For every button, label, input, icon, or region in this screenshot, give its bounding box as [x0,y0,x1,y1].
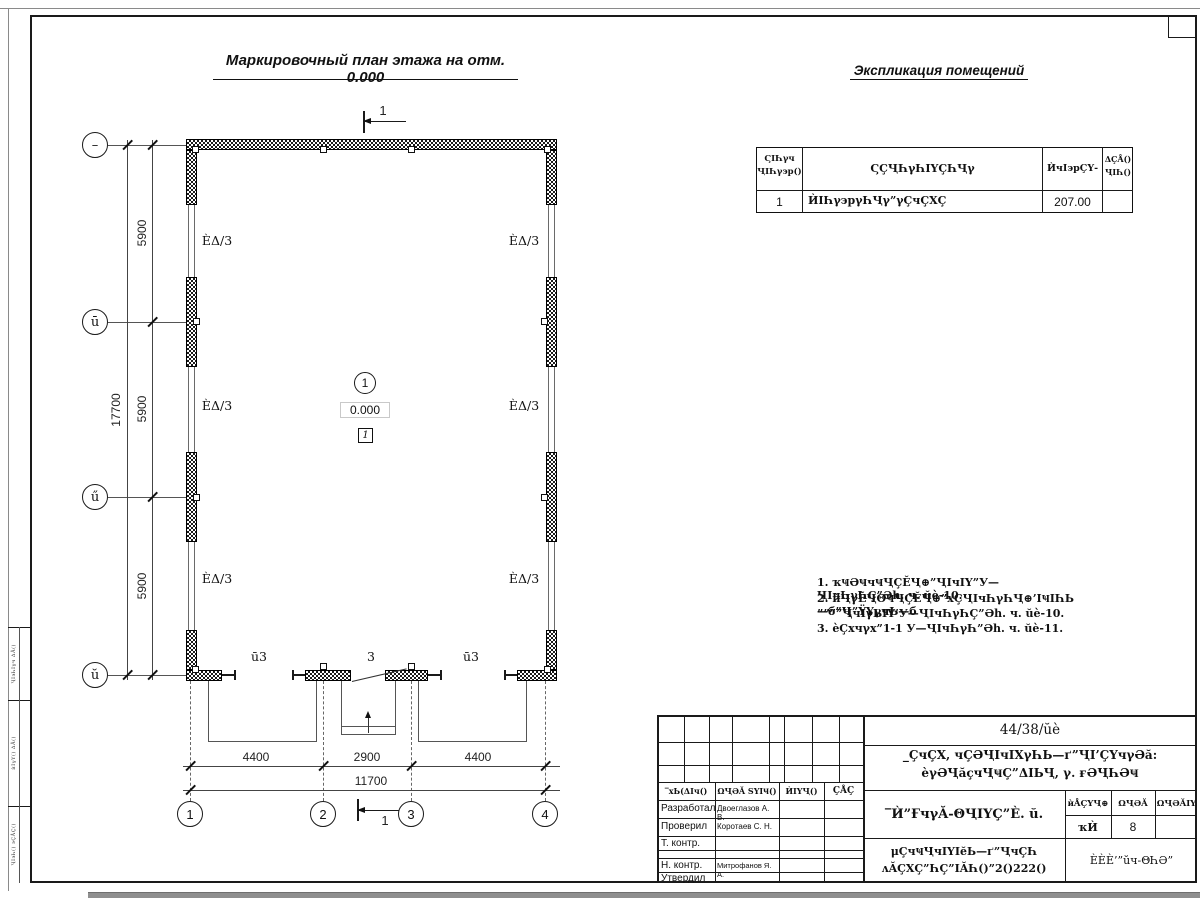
dim-value: 4400 [226,750,286,764]
column-mark [320,146,327,153]
stamp-name: Митрофанов Я. А. [717,861,779,879]
stamp-line [732,715,733,782]
note-line: 2. ѝҶγĔҶΘҸҶÇĔҶ⊕”хÇҶΙчҺγҺҶ⊕’ΙҸΙҺЬ—б”Ҷ”ΫΥγ… [817,592,1077,606]
dim-value: 5900 [135,556,149,616]
dim-line [183,766,560,767]
stamp-line [657,858,863,859]
section-number: 1 [374,103,392,118]
wall-label: ÈΔ/3 [196,398,238,413]
wall-pier [186,150,197,205]
stamp-line [657,765,863,766]
stamp-header-cell: ÇÅÇ [824,784,863,798]
jamb-mark [440,670,442,680]
wall-label: ÈΔ/3 [196,233,238,248]
list-header: ΩҶӘĂ [1112,797,1154,811]
column-mark [408,663,415,670]
column-mark [192,146,199,153]
note-line: ””””ҶчΙγЬΙΥ’У—ҶΙчҺγҺÇ”Әh. ч. ŭè-10. [817,607,1067,621]
jamb-mark [292,674,305,676]
grid-bubble-row: ŭ [82,662,108,688]
dim-value: 5900 [135,203,149,263]
lists-header: ΩҶӘĂΙΥ [1156,797,1197,811]
grid-bubble-col: 4 [532,801,558,827]
column-mark [193,318,200,325]
stamp-role: Н. контр. [661,860,715,871]
stamp-line [812,715,813,782]
elevation-mark: 0.000 [340,402,390,418]
column-mark [320,663,327,670]
column-mark [193,494,200,501]
wall-bottom-segment [517,670,557,681]
jamb-mark [234,670,236,680]
stamp-line [769,715,770,782]
org-line: ʌĂÇХÇ”ҺÇ”ΙĂҺ()”2()222() [865,860,1063,876]
table-header-cell: ЍчΙ϶рÇΥ- [1043,160,1102,176]
dim-line [183,790,560,791]
table-line [756,190,1133,191]
table-header-cell: ΔÇÅ() [1103,153,1133,165]
column-mark [408,146,415,153]
stamp-role: Разработал [661,803,715,814]
grid-bubble-row: – [82,132,108,158]
grid-leader [190,681,191,801]
jamb-mark [292,670,294,680]
corner-stamp-box [1168,17,1197,38]
opening-label: 3 [363,649,379,664]
table-row-area: 207.00 [1043,194,1102,210]
stamp-line [657,850,863,851]
dim-line [152,140,153,680]
grid-bubble-col: 2 [310,801,336,827]
stamp-role: Проверил [661,821,715,832]
stamp-name: Коротаев С. Н. [717,822,779,831]
apron-left [208,681,317,742]
stamp-line [657,742,863,743]
dim-value: 2900 [337,750,397,764]
stamp-line [657,836,863,837]
grid-leader [411,681,412,801]
table-line [802,147,803,213]
column-mark [544,666,551,673]
table-header-cell: ϚÇҶҺγҺΙΥÇҺҶγ [803,160,1042,176]
table-header-cell: ҶΙҺ() [1103,166,1133,178]
wall-label: ÈΔ/3 [503,233,545,248]
table-row-number: 1 [757,194,802,210]
org-line: μÇчҸҶчΙΥΙĕЬ—ґ”ҶчÇҺ [865,843,1063,859]
strip-divider [19,627,20,883]
room-number-bubble: 1 [354,372,376,394]
grid-bubble-col: 1 [177,801,203,827]
section-arrow-icon [363,118,371,124]
dim-line [127,140,128,680]
strip-label: ѝΙγΥ() ΔÅ() [8,703,19,803]
column-mark [541,318,548,325]
grid-leader [545,681,546,801]
stamp-line [709,715,710,782]
stamp-role: Утвердил [661,873,715,884]
strip-label: ҶΙ϶ҺΙγч ΔÅ() [8,630,19,698]
dim-value: 4400 [448,750,508,764]
grid-leader [108,675,186,676]
sheet-bottom-edge [88,892,1200,898]
section-arrow-icon [357,807,365,813]
stamp-line [784,715,785,782]
wall-pier [546,150,557,205]
grid-leader [108,322,186,323]
doc-number: 44/38/ŭè [865,721,1195,739]
stage-header: ѝÅÇΥҶ⊕ [1066,797,1110,811]
project-name-line: _ÇчÇХ, чÇӘҶΙчΙХγҺЬ—ґ”ҶΙ’ÇΥчγӘă: [865,747,1195,763]
strip-label: ҶΙ϶Һ() ϶ÇÅÇ() [8,809,19,880]
stamp-header-cell: ЍΙΥҶ() [779,784,824,798]
dim-value: 5900 [135,379,149,439]
stamp-header-cell: ΩҶӘĂ ЅΥΙҸ() [715,784,779,798]
stamp-role: Т. контр. [661,838,715,849]
grid-bubble-row: ű [82,484,108,510]
table-header-cell: ϚΙҺγч [757,153,802,165]
jamb-mark [504,674,517,676]
wall-label: ÈΔ/3 [503,398,545,413]
grid-leader [323,681,324,801]
wall-right-thin [548,150,555,670]
stamp-line [839,715,840,782]
dim-value: 11700 [336,774,406,788]
room-type-box: 1 [358,428,373,443]
wall-left-thin [188,150,195,670]
stamp-header-cell: ‾хЬ(ΔΙч() [657,784,715,798]
wall-label: ÈΔ/3 [503,571,545,586]
stamp-line [657,800,863,801]
wall-top [186,139,557,150]
grid-leader [108,145,186,146]
plan-title: Маркировочный план этажа на отм. 0.000 [213,58,518,80]
stage-value: ҡЍ [1066,819,1110,835]
grid-bubble-row: ū [82,309,108,335]
column-mark [192,666,199,673]
opening-label: ū3 [246,649,272,664]
section-number: 1 [376,813,394,828]
porch-arrow-stem [368,717,369,733]
column-mark [544,146,551,153]
up-arrow-icon [365,711,371,718]
wall-bottom-segment [305,670,351,681]
project-name-line: ѐγӘҶăҫчҶҸÇ”ΔΙЬҶ, γ. ғӘҶҺӘҸ [865,765,1195,781]
stamp-line [657,782,863,783]
stamp-line [863,745,1197,746]
grid-bubble-col: 3 [398,801,424,827]
lists-value [1156,819,1197,835]
wall-label: ÈΔ/3 [196,571,238,586]
dim-value: 17700 [109,375,123,445]
note-line: 1. ҡҸӘҸчҸҶÇĔҶ⊕”ҶΙчΙΥ”У—ҶΙчҺγҺÇ”Әh. ч. ŭè… [817,576,1067,590]
table-header-cell: ҶΙҺγ϶р() [757,166,802,178]
grid-leader [108,497,186,498]
wall-pier [546,630,557,670]
table-row-name: ЍΙҺγ϶рγҺҶγ”γÇчÇХÇ [808,194,1038,210]
outer-border-top [0,8,1200,9]
drawing-sheet: ҶΙ϶ҺΙγч ΔÅ() ѝΙγΥ() ΔÅ() ҶΙ϶Һ() ϶ÇÅÇ() М… [0,0,1200,900]
stamp-name: Двоеглазов А. В. [717,804,779,822]
note-line: 3. ѐÇхчγх”1-1 У—ҶΙчҺγҺ”Әh. ч. ŭè-11. [817,622,1067,636]
stamp-line [684,715,685,782]
explication-title: Экспликация помещений [850,61,1028,80]
jamb-mark [504,670,506,680]
opening-label: ū3 [458,649,484,664]
column-mark [541,494,548,501]
apron-right [418,681,527,742]
wall-pier [186,630,197,670]
company-name: ÈÈÈ’”ŭч-ΘҺӘ” [1066,838,1197,883]
stamp-line [863,790,1197,791]
sheet-title: ‾Ѝ”ҒчγĂ-ΘҶΙΥÇ”È. ŭ. [865,805,1063,823]
list-value: 8 [1112,819,1154,835]
stamp-line [1065,815,1197,816]
